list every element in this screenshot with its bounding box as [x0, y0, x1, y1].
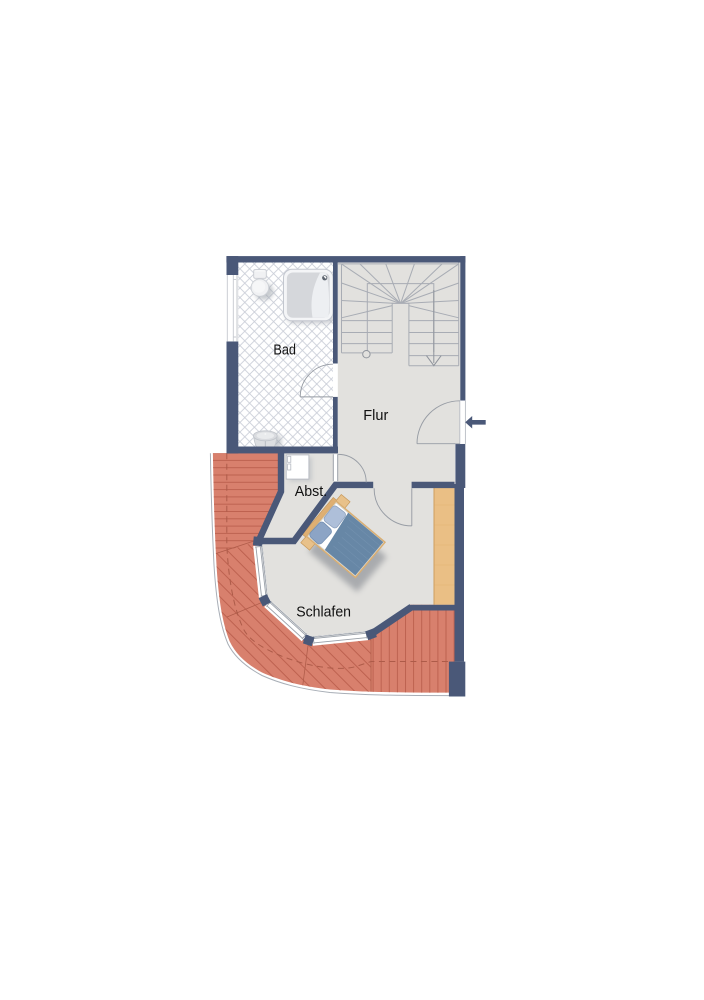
- svg-text:Abst.: Abst.: [295, 483, 327, 500]
- svg-text:Flur: Flur: [363, 407, 388, 424]
- svg-text:Bad: Bad: [273, 341, 296, 358]
- svg-text:Schlafen: Schlafen: [296, 604, 351, 621]
